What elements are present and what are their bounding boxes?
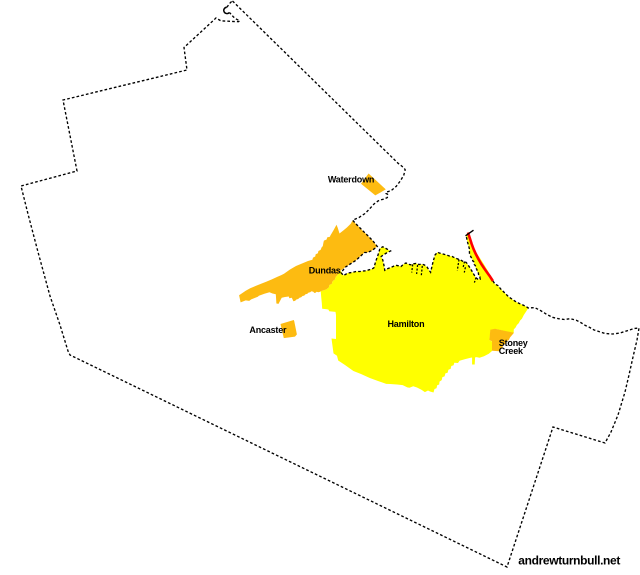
svg-text:Hamilton: Hamilton xyxy=(388,319,425,329)
svg-text:Dundas: Dundas xyxy=(309,266,341,276)
svg-text:Creek: Creek xyxy=(499,346,524,356)
svg-text:Waterdown: Waterdown xyxy=(328,175,374,185)
svg-text:Ancaster: Ancaster xyxy=(249,325,287,335)
svg-text:andrewturnbull.net: andrewturnbull.net xyxy=(518,553,620,567)
